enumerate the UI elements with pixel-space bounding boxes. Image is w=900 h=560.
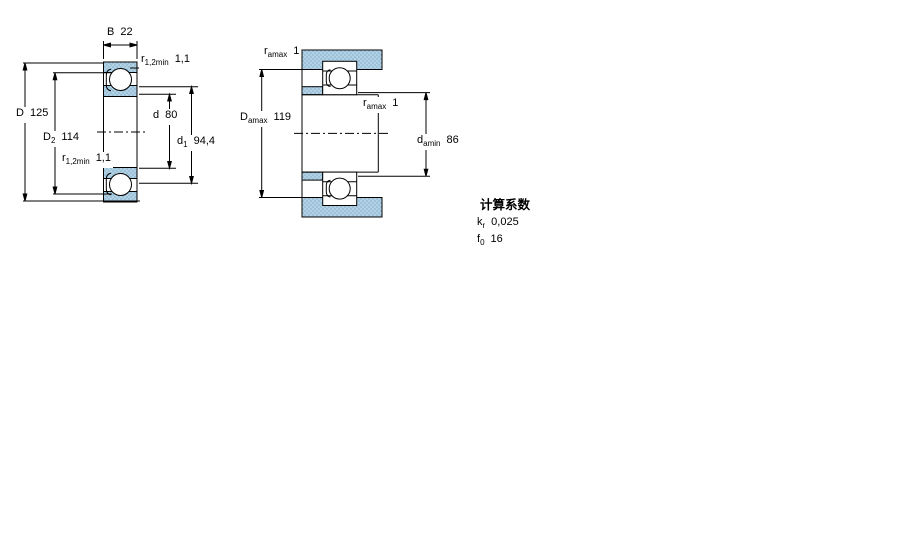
calc-factor-kr: kr0,025 xyxy=(477,216,519,232)
dim-label-Damax: Damax119 xyxy=(238,111,293,127)
dim-label-damin: damin86 xyxy=(415,134,461,150)
dim-label-d: d80 xyxy=(151,109,179,125)
right-mounting-section xyxy=(294,50,388,217)
left-bearing-section xyxy=(97,62,146,202)
dim-label-B: B22 xyxy=(105,26,135,42)
arrow-D2-top xyxy=(53,73,57,80)
shaft-shoulder-top xyxy=(302,87,323,95)
mounted-ball-bottom xyxy=(329,178,350,199)
dim-label-d1: d194,4 xyxy=(175,135,217,151)
ball-top xyxy=(110,69,132,91)
arrow-d-top xyxy=(168,94,172,101)
arrow-D-bottom xyxy=(23,194,27,201)
mounted-ball-top xyxy=(329,68,350,89)
arrow-D2-bottom xyxy=(53,187,57,194)
ball-bottom xyxy=(110,174,132,196)
dim-label-D2: D2114 xyxy=(41,131,81,147)
shaft-shoulder-bottom xyxy=(302,172,323,180)
arrow-Damax-top xyxy=(260,70,264,77)
dim-label-ramax-mid: ramax1 xyxy=(361,97,400,113)
arrow-Damax-bottom xyxy=(260,191,264,198)
arrow-D-top xyxy=(23,63,27,70)
arrow-damin-bottom xyxy=(424,169,428,176)
calculation-factors-title: 计算系数 xyxy=(480,194,530,213)
dim-label-r12min-top: r1,2min1,1 xyxy=(139,53,192,69)
arrow-B-left xyxy=(104,43,111,47)
bearing-datasheet-drawing: B22 r1,2min1,1 D125 D2114 r1,2min1,1 d80… xyxy=(0,0,900,560)
dim-label-r12min-bottom: r1,2min1,1 xyxy=(60,152,113,168)
arrow-d1-top xyxy=(190,87,194,94)
arrow-d1-bottom xyxy=(190,177,194,184)
calc-factor-f0: f016 xyxy=(477,233,503,249)
dim-label-ramax-top: ramax1 xyxy=(262,45,301,61)
bearing-technical-drawing xyxy=(0,0,470,230)
dim-label-D: D125 xyxy=(14,107,50,123)
arrow-B-right xyxy=(130,43,137,47)
arrow-d-bottom xyxy=(168,162,172,169)
arrow-damin-top xyxy=(424,93,428,100)
